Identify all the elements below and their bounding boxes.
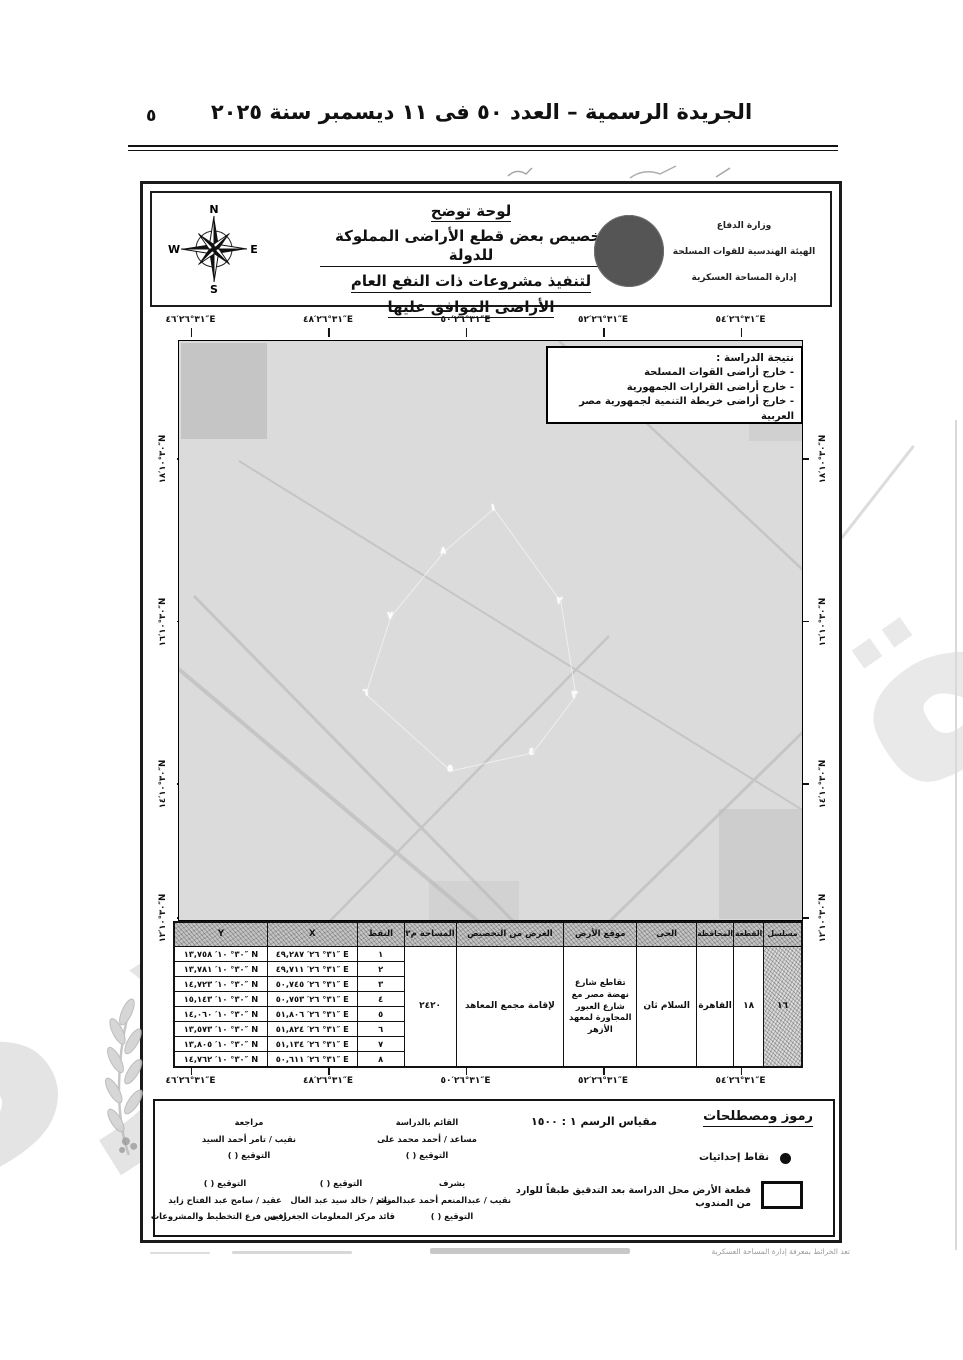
print-smudge (150, 1252, 210, 1254)
tick-mark (328, 328, 330, 337)
signature-block-supervisor: يشرفنقيب / عبدالمنعم أحمد عبدالمنعمالتوق… (393, 1175, 511, 1225)
gazette-page: صورة صورة الجريدة الرسمية – العدد ٥٠ فى … (0, 0, 963, 1360)
table-cell-x: ٣١° ٢٦′ ٥٠,٧٥٣″ E (268, 992, 357, 1007)
agency-line: وزارة الدفاع (670, 213, 818, 239)
print-note: تعد الخرائط بمعرفة إدارة المساحة العسكري… (640, 1247, 850, 1256)
column-header: Y (175, 923, 267, 947)
column-header: موقع الأرض (564, 923, 636, 947)
coordinates-table: Y ٣٠° ١٠′ ١٣,٧٥٨″ N٣٠° ١٠′ ١٣,٧٨١″ N٣٠° … (173, 921, 803, 1068)
table-cell-x: ٣١° ٢٦′ ٥١,٨٢٤″ E (268, 1022, 357, 1037)
agency-line: الهيئة الهندسية للقوات المسلحة (670, 239, 818, 265)
coordinate-label: ٣١°٢٦′٤٨″E (303, 315, 353, 325)
column-header: المحافظة (697, 923, 733, 947)
coordinate-point-symbol (780, 1153, 791, 1164)
legend-heading: رموز ومصطلحات (703, 1109, 813, 1127)
tick-mark (740, 328, 742, 337)
tick-mark (465, 328, 467, 337)
agency-heading: وزارة الدفاعالهيئة الهندسية للقوات المسل… (670, 213, 818, 291)
column-area: المساحة م٢ ٢٤٢٠ (405, 923, 457, 1066)
table-cell-x: ٣١° ٢٦′ ٥٠,٦١١″ E (268, 1052, 357, 1066)
table-cell-point: ٢ (358, 962, 404, 977)
column-header: القطعة (734, 923, 763, 947)
table-cell-y: ٣٠° ١٠′ ١٤,٠٦٠″ N (175, 1007, 267, 1022)
map-bottom-coordinates: ٣١°٢٦′٤٦″E٣١°٢٦′٤٨″E٣١°٢٦′٥٠″E٣١°٢٦′٥٢″E… (178, 1076, 803, 1098)
column-y: Y ٣٠° ١٠′ ١٣,٧٥٨″ N٣٠° ١٠′ ١٣,٧٨١″ N٣٠° … (175, 923, 268, 1066)
tick-mark (802, 917, 809, 919)
signature-block-researcher: القائم بالدراسةمساعد / أحمد محمد علىالتو… (377, 1114, 477, 1164)
plate-title-line: تخصيص بعض قطع الأراضى المملوكة للدولة (320, 227, 622, 267)
tick-mark (603, 1067, 605, 1075)
table-cell-point: ٤ (358, 992, 404, 1007)
page-number: ٥ (146, 106, 156, 126)
table-cell-district: السلام ثان (637, 947, 696, 1066)
map-point-number: ٨ (440, 546, 446, 557)
table-cell-y: ٣٠° ١٠′ ١٥,١٤٣″ N (175, 992, 267, 1007)
table-cell-y: ٣٠° ١٠′ ١٣,٥٧٣″ N (175, 1022, 267, 1037)
coordinate-label: ٣١°٢٦′٥٢″E (578, 1076, 628, 1086)
coordinate-point-label: نقاط إحداثيات (699, 1152, 769, 1163)
coordinate-label: ٣١°٢٦′٥٤″E (715, 1076, 765, 1086)
column-header: X (268, 923, 357, 947)
plate-header-box: N S E W لوحة توضحتخصيص بعض قطع الأراضى ا… (150, 191, 832, 307)
print-smudge (232, 1251, 352, 1254)
print-smudge (430, 1248, 630, 1254)
study-result-box: نتيجة الدراسة : - خارج أراضى القوات المس… (546, 346, 803, 424)
table-cell-plot: ١٨ (734, 947, 763, 1066)
table-cell-x: ٣١° ٢٦′ ٤٩,٧١١″ E (268, 962, 357, 977)
table-cell-point: ١ (358, 947, 404, 962)
compass-w-label: W (168, 243, 180, 256)
column-district: الحى السلام ثان (637, 923, 697, 1066)
military-seal-stamp (594, 215, 664, 287)
signature-block-planning-chief: التوقيع ( )عقيد / سامح عبد الفتاح زايدرئ… (163, 1175, 287, 1225)
table-cell-y: ٣٠° ١٠′ ١٤,٧٦٢″ N (175, 1052, 267, 1066)
table-cell-x: ٣١° ٢٦′ ٤٩,٢٨٧″ E (268, 947, 357, 962)
table-cell-point: ٦ (358, 1022, 404, 1037)
column-purpose: الغرض من التخصيص لإقامة مجمع المعاهد (457, 923, 565, 1066)
map-point-number: ٦ (362, 688, 368, 699)
column-plot-number: القطعة ١٨ (734, 923, 764, 1066)
agency-line: إدارة المساحة العسكرية (670, 265, 818, 291)
table-cell-y: ٣٠° ١٠′ ١٣,٧٥٨″ N (175, 947, 267, 962)
coordinate-label: ٣١°٢٦′٥٤″E (715, 315, 765, 325)
satellite-map: ١٢٣٤٥٦٧٨ (178, 340, 803, 921)
tick-mark (740, 1067, 742, 1075)
map-point-number: ٤ (529, 746, 535, 757)
table-cell-y: ٣٠° ١٠′ ١٤,٧٢٣″ N (175, 977, 267, 992)
map-point-number: ٧ (387, 611, 393, 622)
table-cell-purpose: لإقامة مجمع المعاهد (457, 947, 564, 1066)
map-point-number: ٣ (572, 689, 578, 700)
signature-block-reviewer: مراجعةنقيب / تامر أحمد السيدالتوقيع ( ) (199, 1114, 299, 1164)
map-point-number: ١ (490, 503, 496, 514)
tick-mark (328, 1067, 330, 1075)
tick-mark (465, 1067, 467, 1075)
column-serial: مسلسل ١٦ (764, 923, 801, 1066)
column-header: الغرض من التخصيص (457, 923, 564, 947)
plot-area-label: قطعة الأرض محل الدراسة بعد التدقيق طبقاً… (513, 1185, 751, 1211)
handwriting-marks (480, 162, 760, 184)
column-header: النقط (358, 923, 404, 947)
compass-s-label: S (210, 283, 218, 295)
coordinate-label: ٣١°٢٦′٤٦″E (165, 315, 215, 325)
study-result-item: - خارج أراضى القرارات الجمهورية (555, 381, 794, 396)
table-cell-point: ٣ (358, 977, 404, 992)
plot-boundary (179, 341, 803, 921)
coordinate-label: ٣١°٢٦′٥٠″E (440, 315, 490, 325)
map-right-coordinates: ٣٠°١٠′١٨″N٣٠°١٠′١٦″N٣٠°١٠′١٤″N٣٠°١٠′١٢″N (811, 340, 835, 921)
tick-mark (190, 328, 192, 337)
map-point-number: ٥ (447, 764, 453, 775)
table-cell-x: ٣١° ٢٦′ ٥١,١٣٤″ E (268, 1037, 357, 1052)
table-cell-governorate: القاهرة (697, 947, 733, 1066)
tick-mark (802, 783, 809, 785)
column-governorate: المحافظة القاهرة (697, 923, 734, 1066)
scan-edge-line (955, 420, 957, 1250)
table-cell-x: ٣١° ٢٦′ ٥٠,٧٤٥″ E (268, 977, 357, 992)
map-left-coordinates: ٣٠°١٠′١٨″N٣٠°١٠′١٦″N٣٠°١٠′١٤″N٣٠°١٠′١٢″N (151, 340, 175, 921)
column-location: موقع الأرض تقاطع شارع نهضة مصر مع شارع ا… (564, 923, 637, 1066)
study-result-title: نتيجة الدراسة : (555, 351, 794, 366)
column-header: الحى (637, 923, 696, 947)
table-cell-location: تقاطع شارع نهضة مصر مع شارع العبور المجا… (564, 947, 636, 1066)
tick-mark (802, 621, 809, 623)
gazette-title: الجريدة الرسمية – العدد ٥٠ فى ١١ ديسمبر … (0, 100, 963, 124)
study-result-item: - خارج أراضى خريطة التنمية لجمهورية مصر … (555, 395, 794, 424)
plot-polygon (366, 509, 576, 771)
table-cell-x: ٣١° ٢٦′ ٥١,٨٠٦″ E (268, 1007, 357, 1022)
coordinate-label: ٣١°٢٦′٥٢″E (578, 315, 628, 325)
column-header: مسلسل (764, 923, 801, 947)
table-cell-point: ٨ (358, 1052, 404, 1066)
signature-block-gis-commander: التوقيع ( )رائد / خالد سيد عبد العالقائد… (287, 1175, 395, 1225)
table-cell-point: ٧ (358, 1037, 404, 1052)
column-x: X ٣١° ٢٦′ ٤٩,٢٨٧″ E٣١° ٢٦′ ٤٩,٧١١″ E٣١° … (268, 923, 358, 1066)
plot-area-symbol (761, 1181, 803, 1209)
tick-mark (603, 328, 605, 337)
coordinate-label: ٣١°٢٦′٥٠″E (440, 1076, 490, 1086)
table-cell-serial: ١٦ (764, 947, 801, 1066)
plate-frame: N S E W لوحة توضحتخصيص بعض قطع الأراضى ا… (140, 181, 842, 1243)
column-point-number: النقط ١٢٣٤٥٦٧٨ (358, 923, 405, 1066)
study-result-item: - خارج أراضى القوات المسلحة (555, 366, 794, 381)
table-cell-area: ٢٤٢٠ (405, 947, 456, 1066)
column-header: المساحة م٢ (405, 923, 456, 947)
table-cell-y: ٣٠° ١٠′ ١٣,٨٠٥″ N (175, 1037, 267, 1052)
plate-title: لوحة توضحتخصيص بعض قطع الأراضى المملوكة … (320, 199, 622, 321)
map-scale: مقياس الرسم ١ : ١٥٠٠ (507, 1115, 657, 1128)
header-rule (128, 145, 838, 151)
map-top-coordinates: ٣١°٢٦′٤٦″E٣١°٢٦′٤٨″E٣١°٢٦′٥٠″E٣١°٢٦′٥٢″E… (178, 315, 803, 337)
map-point-number: ٢ (557, 595, 563, 606)
compass-n-label: N (209, 203, 218, 216)
compass-rose-icon: N S E W (168, 203, 260, 295)
legend-signatures-box: رموز ومصطلحات نقاط إحداثيات قطعة الأرض م… (153, 1099, 835, 1237)
table-cell-point: ٥ (358, 1007, 404, 1022)
coordinate-label: ٣١°٢٦′٤٨″E (303, 1076, 353, 1086)
tick-mark (190, 1067, 192, 1075)
table-cell-y: ٣٠° ١٠′ ١٣,٧٨١″ N (175, 962, 267, 977)
plate-title-line: لتنفيذ مشروعات ذات النفع العام (351, 272, 591, 293)
plate-title-line: لوحة توضح (431, 202, 512, 223)
tick-mark (802, 458, 809, 460)
compass-e-label: E (250, 243, 258, 256)
coordinate-label: ٣١°٢٦′٤٦″E (165, 1076, 215, 1086)
